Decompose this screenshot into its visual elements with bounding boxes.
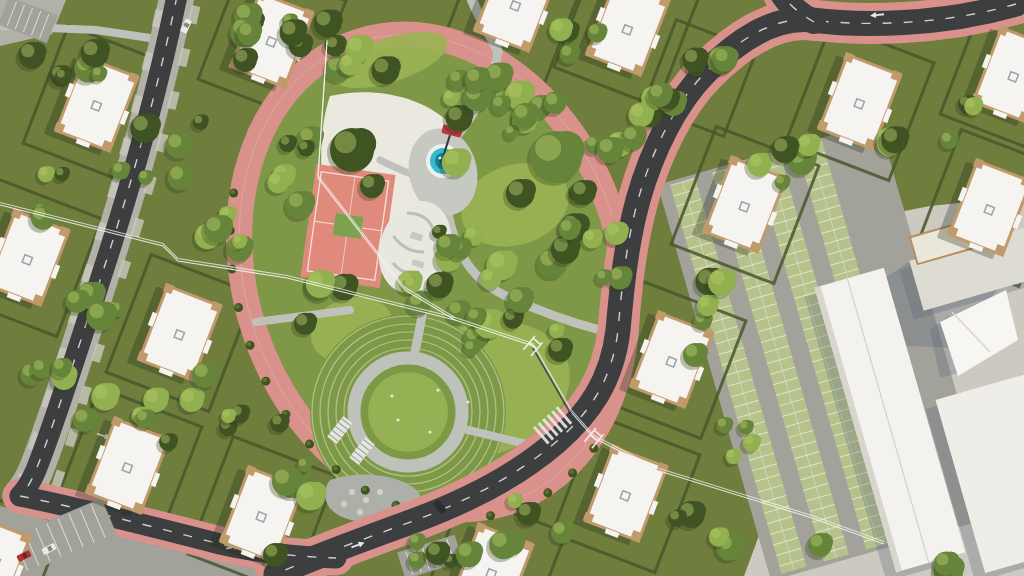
bench <box>390 394 393 397</box>
table <box>349 489 355 495</box>
table <box>377 489 383 495</box>
bench <box>436 388 439 391</box>
amphitheater-lawn <box>368 372 448 452</box>
table <box>357 509 363 515</box>
bench <box>396 418 399 421</box>
aerial-masterplan-render <box>0 0 1024 576</box>
bench <box>428 430 431 433</box>
table <box>341 501 347 507</box>
table <box>363 497 369 503</box>
masterplan-canvas <box>0 0 1024 576</box>
bench <box>466 400 469 403</box>
